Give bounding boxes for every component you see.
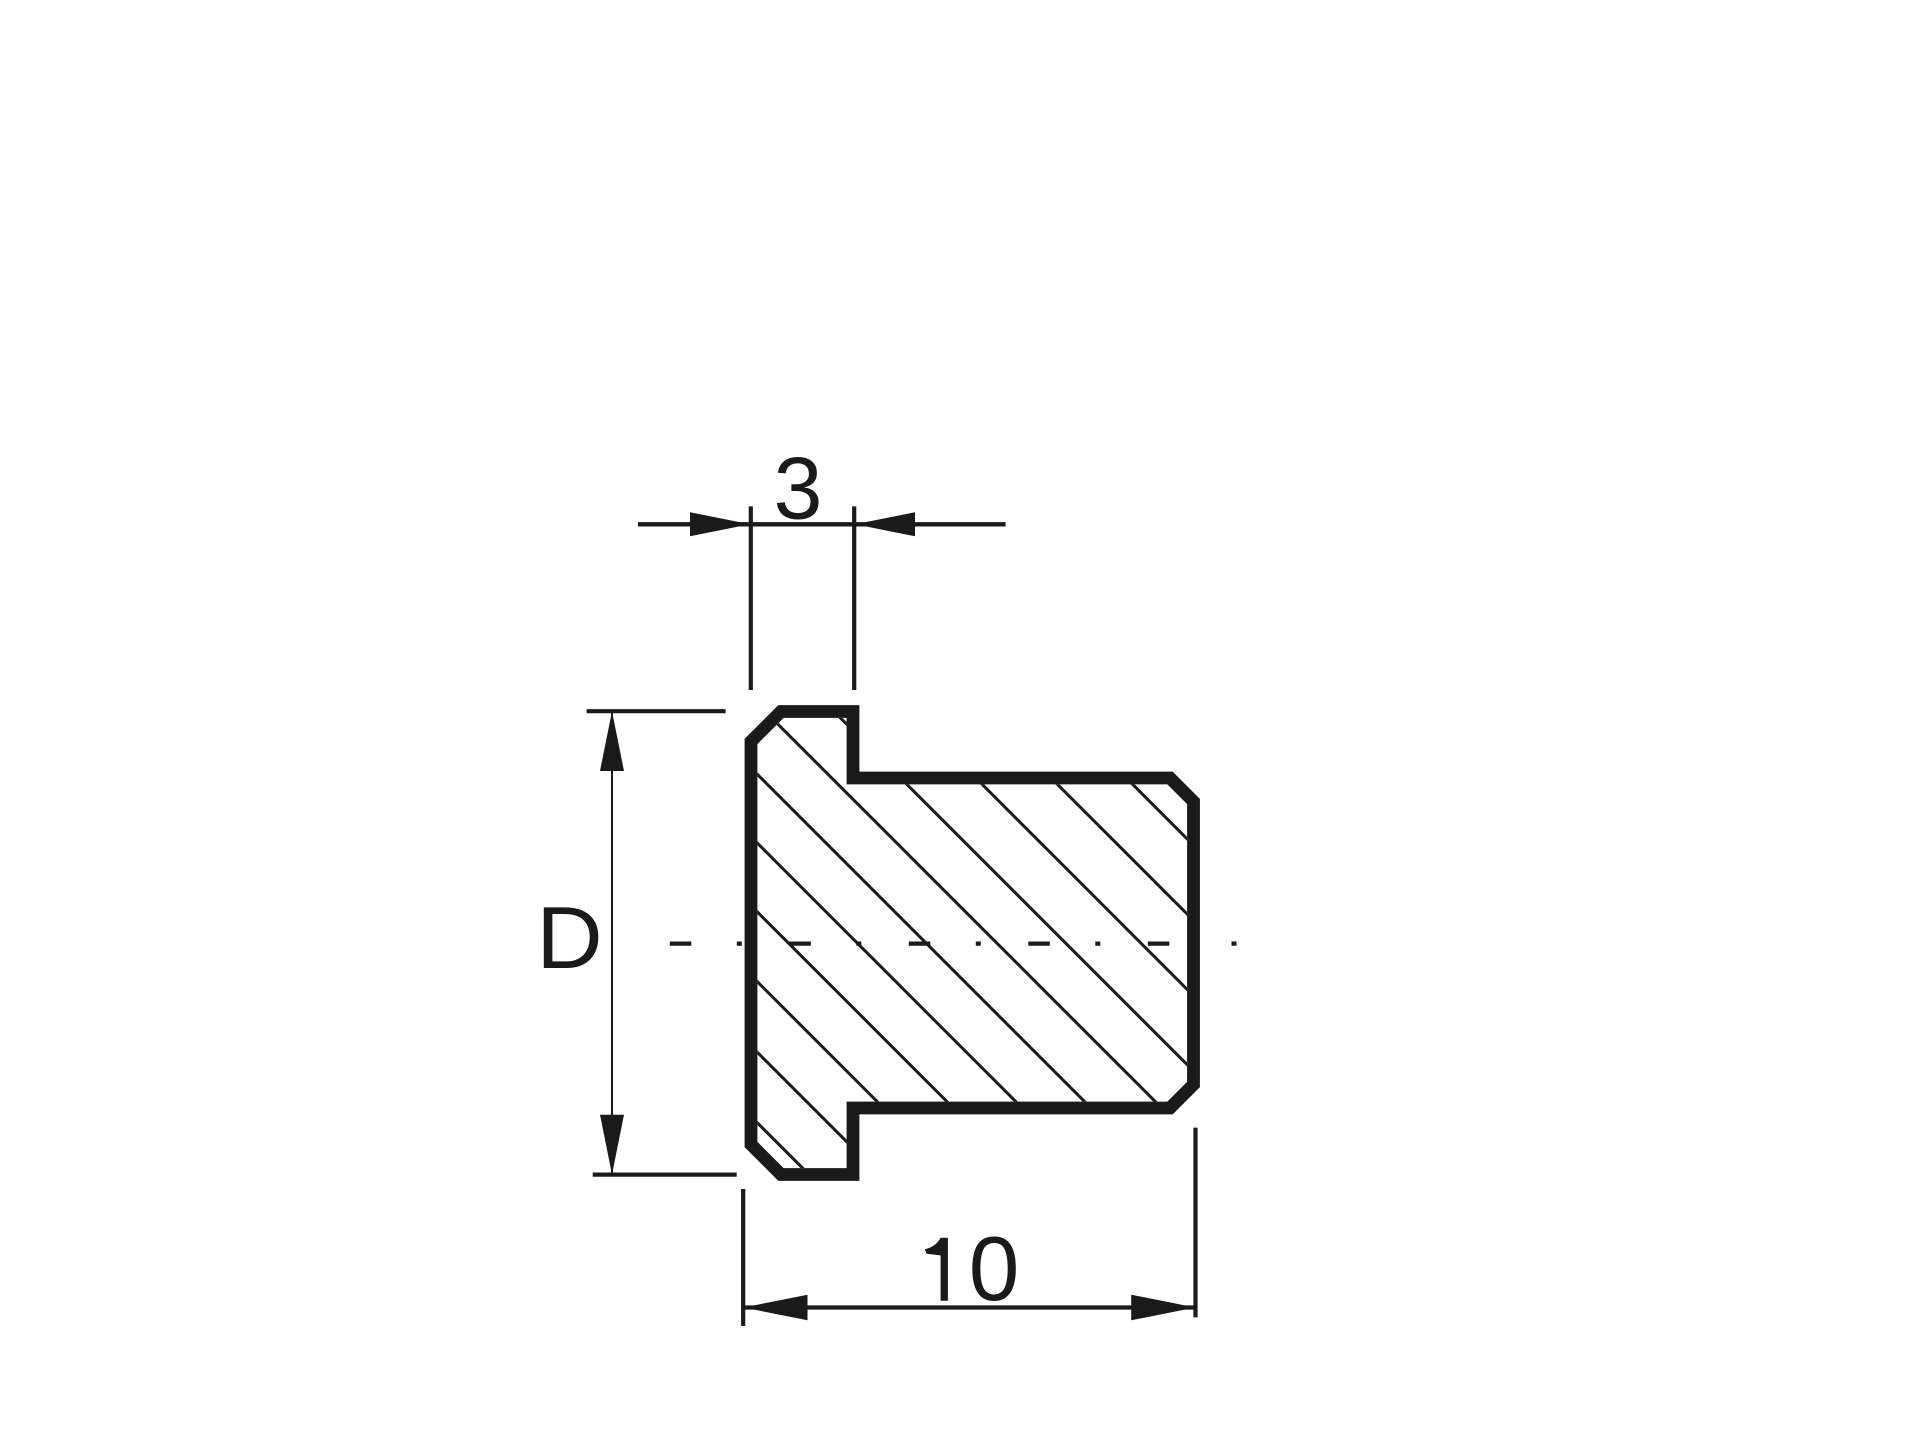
svg-text:D: D [536, 888, 603, 987]
svg-text:3: 3 [774, 439, 823, 538]
svg-text:0: 0 [969, 1219, 1020, 1320]
